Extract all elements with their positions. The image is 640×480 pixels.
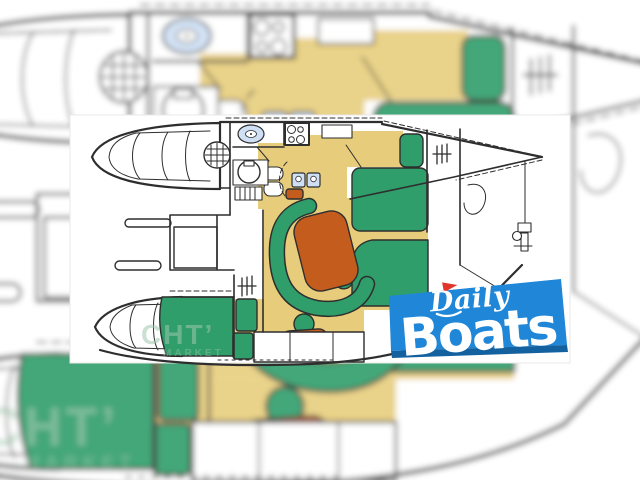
boat-listing-image: CHT’ MARKET Daily Boats [0, 0, 640, 480]
floorplan-scene: CHT’ MARKET Daily Boats [0, 0, 640, 480]
logo-word-boats: Boats [398, 297, 559, 369]
